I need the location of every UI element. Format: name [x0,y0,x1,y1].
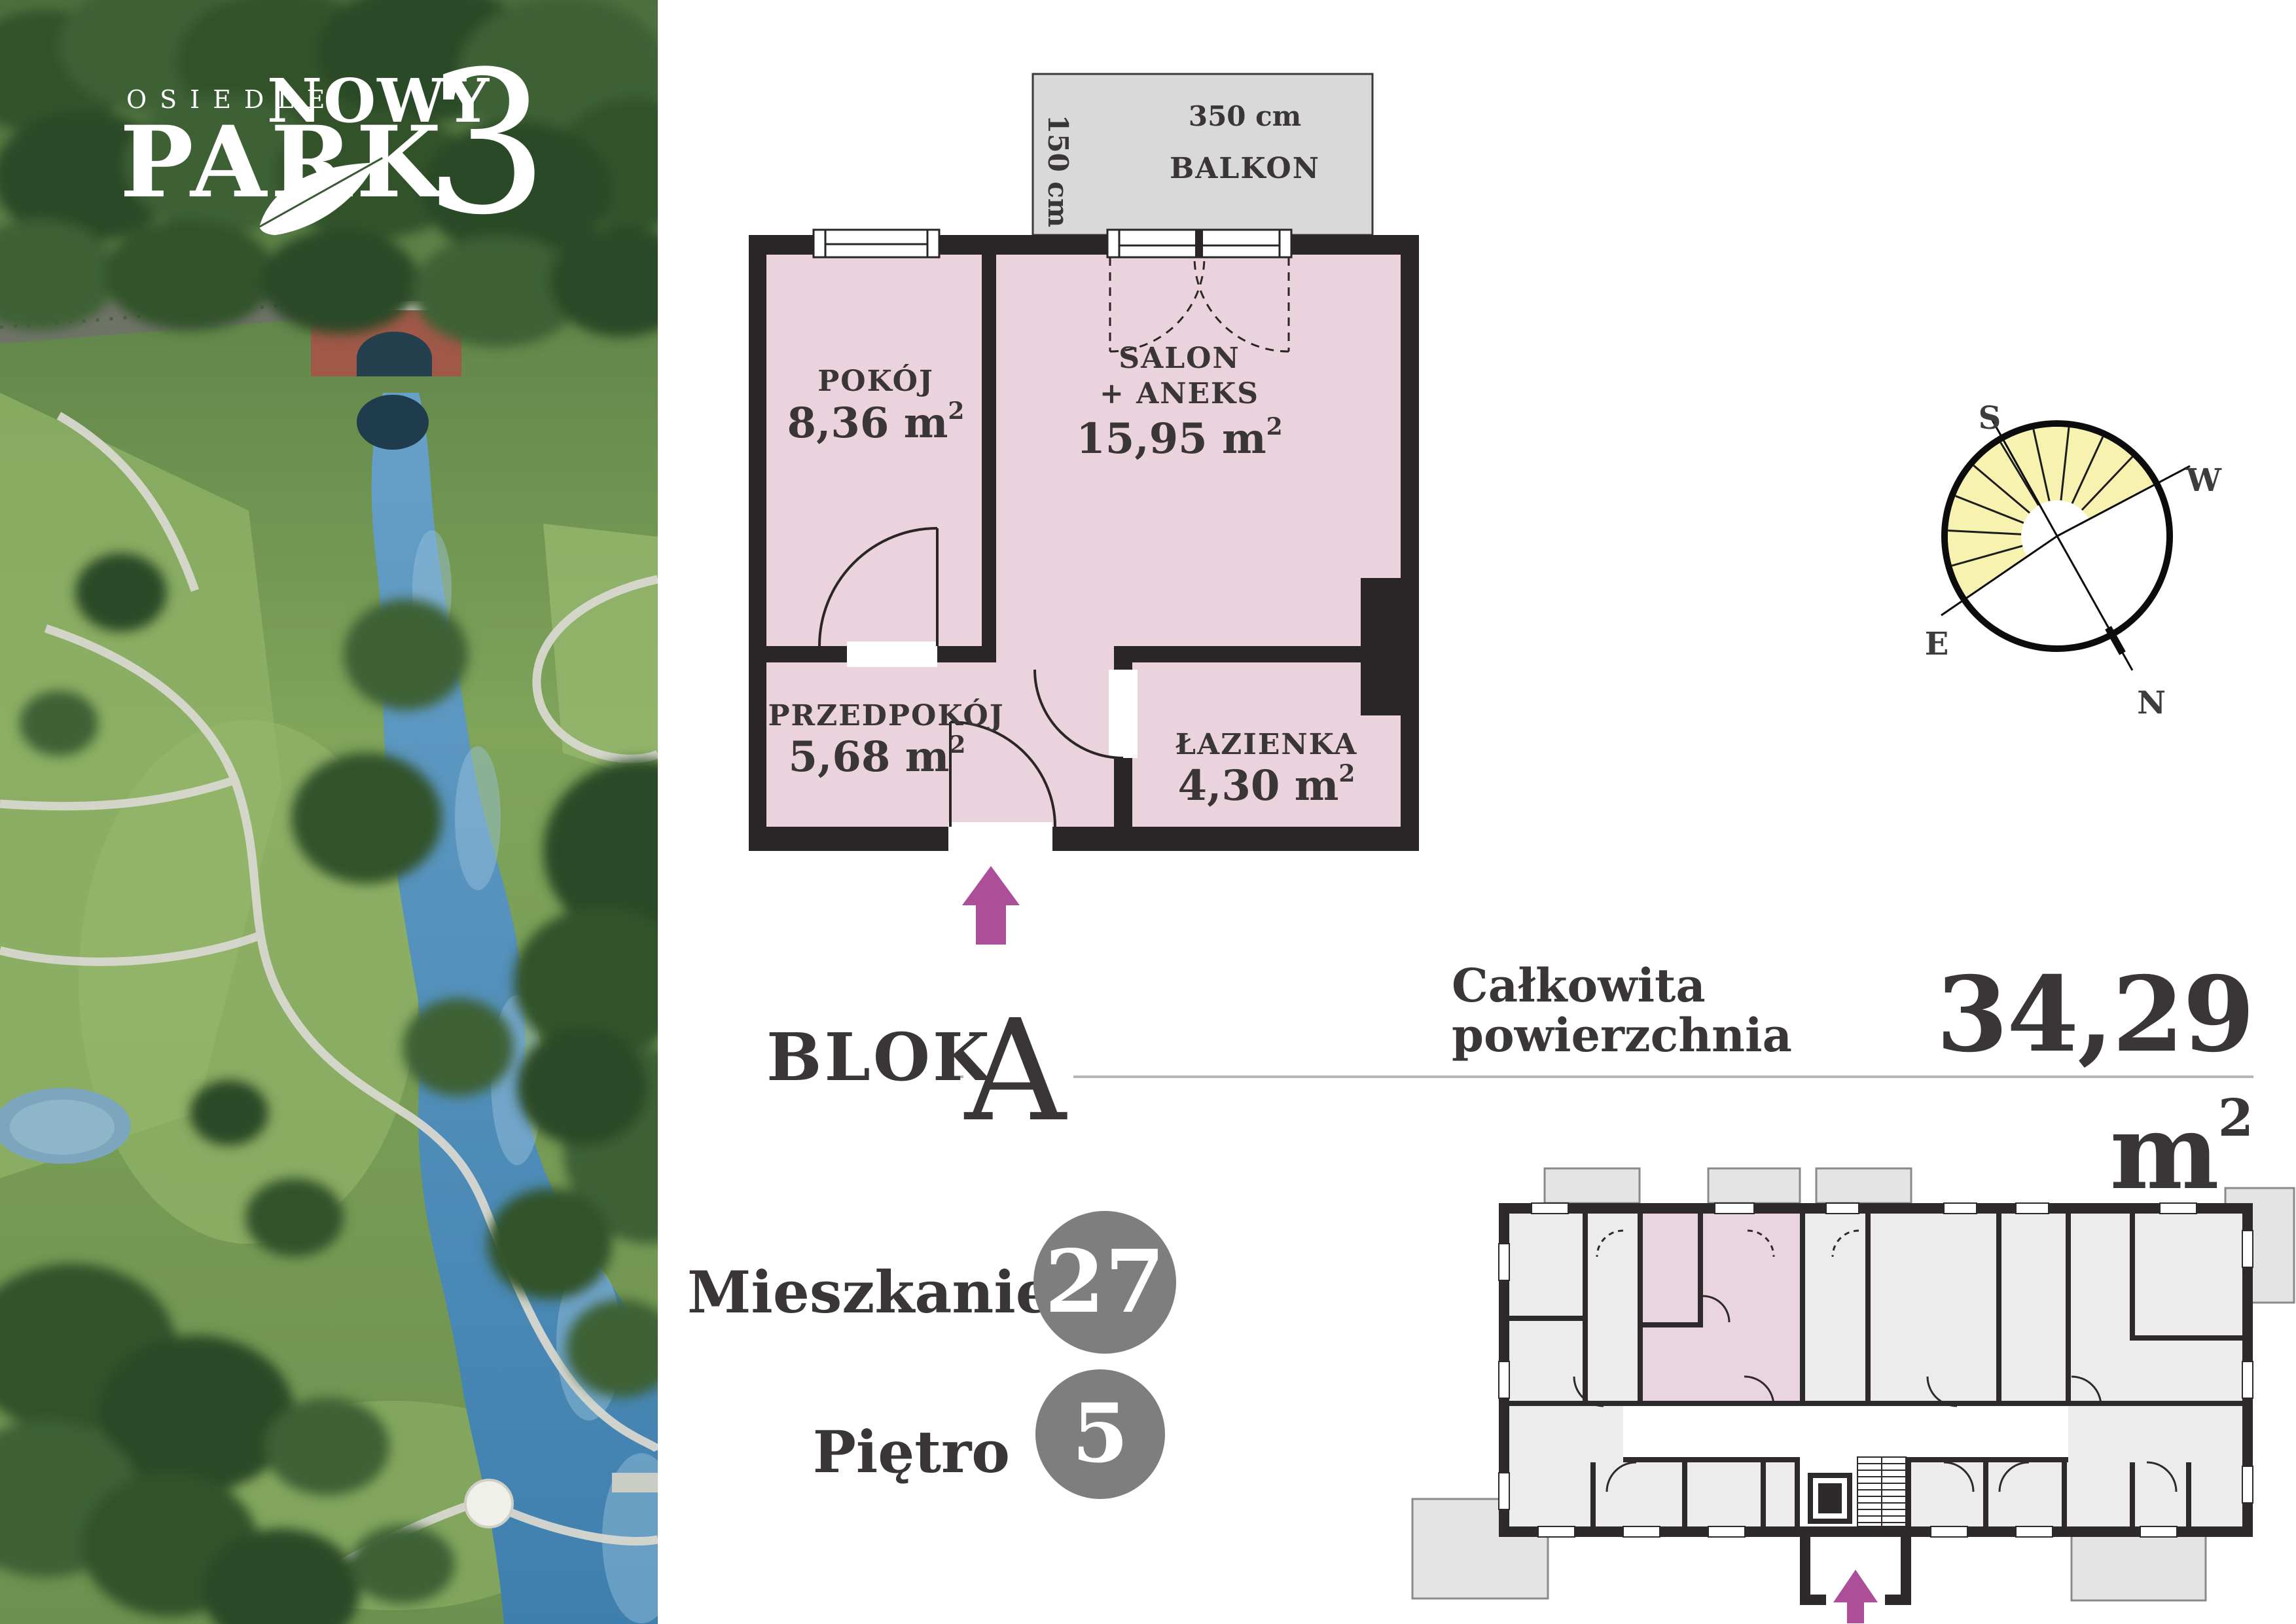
compass-rose: S W E N [1898,367,2238,733]
logo-leaf-icon [252,157,409,249]
room-salon-name-line2: + ANEKS [1100,377,1259,410]
svg-text:15,95 m2: 15,95 m2 [1076,413,1282,463]
staircase [1857,1457,1906,1526]
total-area-sup: 2 [2218,1089,2253,1148]
compass-west: W [2185,462,2222,499]
total-area-label-line1: Całkowita [1452,961,1792,1011]
apartment-number-badge: 27 [1033,1211,1176,1354]
room-przedpokoj-area: 5,68 m [789,732,950,782]
building-floor-plan [1407,1165,2296,1623]
compass-east: E [1925,626,1949,662]
balcony-depth-label: 150 cm [1042,115,1074,227]
compass-south: S [1979,400,2001,437]
compass-north: N [2137,685,2166,721]
room-lazienka-name: ŁAZIENKA [1175,728,1357,761]
river-under-bridge [357,395,429,450]
entrance-arrow-icon [962,866,1020,945]
svg-text:5,68 m2: 5,68 m2 [789,731,966,782]
balcony: 350 cm BALKON 150 cm [1033,74,1372,235]
elevator [1808,1473,1852,1524]
block-value: A [965,1001,1066,1142]
floor-number: 5 [1072,1386,1128,1481]
balcony-label: BALKON [1170,152,1320,185]
fountain [465,1480,512,1527]
brochure-page: OSIEDLE NOWY PARK 3 350 cm BALKON 150 cm [0,0,2296,1624]
floor-label: Piętro [687,1422,1010,1482]
floor-number-badge: 5 [1035,1369,1165,1499]
balcony-width-label: 350 cm [1189,100,1301,132]
room-pokoj-area: 8,36 m [787,399,948,448]
apartment-number: 27 [1045,1231,1165,1333]
room-pokoj-name: POKÓJ [817,363,934,398]
room-przedpokoj-name: PRZEDPOKÓJ [768,698,1004,732]
svg-text:4,30 m2: 4,30 m2 [1178,760,1355,810]
svg-text:8,36 m2: 8,36 m2 [787,397,965,448]
apartment-floor-plan: 350 cm BALKON 150 cm [746,65,1440,949]
room-salon-name-line1: SALON [1119,342,1240,375]
logo-number: 3 [424,46,549,242]
building-plan-highlighted-unit [1640,1214,1803,1406]
window-icon [814,230,939,257]
room-lazienka-area: 4,30 m [1178,761,1339,810]
apartment-label: Mieszkanie [687,1262,1010,1322]
room-salon-area: 15,95 m [1076,414,1266,463]
total-area-label-line2: powierzchnia [1452,1011,1792,1060]
total-area-label: Całkowita powierzchnia [1452,961,1792,1060]
park-aerial-photo: OSIEDLE NOWY PARK 3 [0,0,658,1624]
block-label: BLOK [766,1024,992,1090]
small-bridge [612,1473,658,1492]
